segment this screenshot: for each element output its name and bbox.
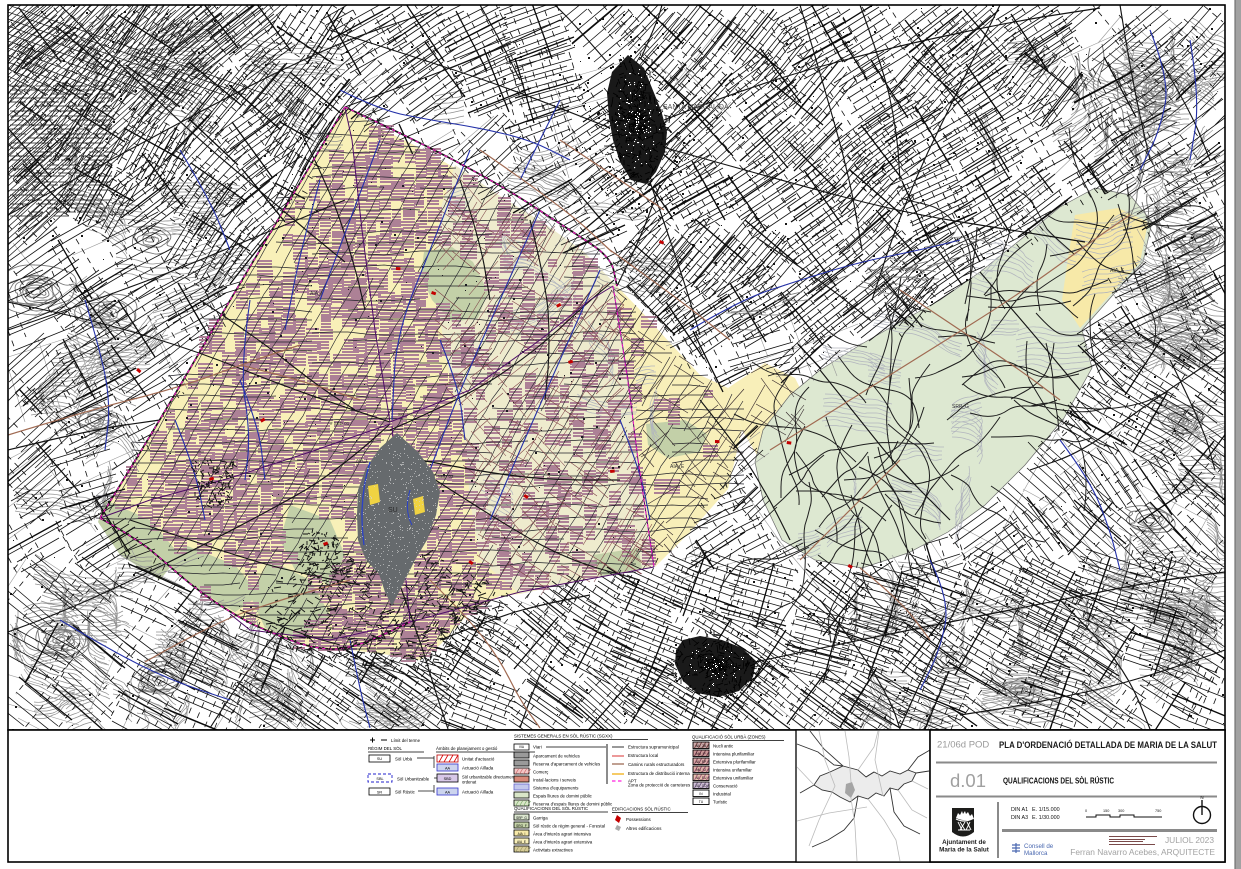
svg-text:Viari: Viari [533, 745, 542, 750]
svg-text:TU: TU [699, 800, 704, 804]
svg-text:AIA_E: AIA_E [670, 464, 685, 470]
svg-text:Zona de protecció de carretere: Zona de protecció de carreteres [628, 783, 691, 788]
svg-text:Estructura de distribució inte: Estructura de distribució interna [628, 771, 690, 776]
svg-text:N: N [1200, 795, 1203, 800]
svg-text:Possessions: Possessions [626, 817, 651, 822]
svg-text:NU_ZA: NU_ZA [696, 744, 707, 748]
svg-text:d.01: d.01 [950, 770, 986, 791]
svg-text:Conservació: Conservació [713, 783, 738, 788]
svg-text:JULIOL 2023: JULIOL 2023 [1165, 835, 1214, 845]
svg-text:EDIFICACIONS SÒL RÚSTIC: EDIFICACIONS SÒL RÚSTIC [612, 807, 671, 812]
svg-text:Àmbits de planejament o gestió: Àmbits de planejament o gestió [436, 746, 498, 751]
svg-text:ordenat: ordenat [462, 780, 477, 785]
svg-text:NU_IU: NU_IU [696, 768, 706, 772]
svg-text:SBD: SBD [444, 777, 452, 781]
svg-text:Actuació Aïllada: Actuació Aïllada [462, 766, 494, 771]
svg-text:0: 0 [1085, 809, 1087, 813]
svg-text:Extensiva plurifamiliar: Extensiva plurifamiliar [713, 759, 756, 764]
svg-text:LLUBI: LLUBI [108, 211, 125, 217]
svg-text:AIA_E: AIA_E [1110, 268, 1125, 274]
svg-text:Límit del terme: Límit del terme [391, 738, 421, 743]
svg-text:NU_CO: NU_CO [695, 784, 707, 788]
svg-text:Instal·lacions i serveis: Instal·lacions i serveis [533, 778, 577, 783]
svg-text:Aparcament de vehicles: Aparcament de vehicles [533, 754, 581, 759]
svg-text:Extensiva unifamiliar: Extensiva unifamiliar [713, 775, 754, 780]
svg-text:DIN A1: DIN A1 [1011, 807, 1028, 813]
svg-text:150: 150 [1103, 809, 1109, 813]
svg-text:Sòl Rústic: Sòl Rústic [395, 790, 416, 795]
svg-text:SISTEMES GENERALS EN SÒL RÚSTI: SISTEMES GENERALS EN SÒL RÚSTIC (SGXX) [514, 734, 613, 739]
svg-text:QUALIFICACIONS DEL SÒL RÚSTIC: QUALIFICACIONS DEL SÒL RÚSTIC [1003, 775, 1114, 786]
svg-text:Turístic: Turístic [713, 799, 728, 804]
svg-text:Estructura supramunicipal: Estructura supramunicipal [628, 745, 679, 750]
svg-text:DIN A3: DIN A3 [1011, 815, 1028, 821]
svg-text:Consell de: Consell de [1024, 843, 1054, 850]
svg-text:AIA_I: AIA_I [518, 832, 526, 836]
svg-text:SBL: SBL [376, 777, 383, 781]
svg-text:SBD 02: SBD 02 [438, 474, 454, 479]
svg-text:Estructura local: Estructura local [628, 753, 658, 758]
svg-text:Comerç: Comerç [533, 770, 549, 775]
svg-text:Altres edificacions: Altres edificacions [626, 826, 662, 831]
svg-text:SR: SR [377, 790, 383, 794]
svg-text:750: 750 [1155, 809, 1161, 813]
svg-text:QUALIFICACIÓ SÒL URBÀ (ZONES): QUALIFICACIÓ SÒL URBÀ (ZONES) [692, 735, 766, 740]
svg-text:SRP_G: SRP_G [952, 404, 969, 410]
svg-text:Actuació Aïllada: Actuació Aïllada [462, 790, 494, 795]
svg-text:Unitat d'actuació: Unitat d'actuació [462, 757, 495, 762]
svg-text:Espais lliures de domini públi: Espais lliures de domini públic [533, 794, 593, 799]
svg-text:Mallorca: Mallorca [1024, 850, 1048, 857]
svg-text:AA: AA [445, 766, 451, 770]
svg-text:21/06d POD: 21/06d POD [937, 740, 989, 751]
svg-text:SG_PS: SG_PS [398, 412, 413, 417]
svg-text:Sòl rústic de règim general -: Sòl rústic de règim general - Forestal [533, 824, 605, 829]
svg-text:Sòl Urbanitzable: Sòl Urbanitzable [397, 777, 430, 782]
svg-text:Industrial: Industrial [713, 791, 731, 796]
svg-text:SANTA MARGALIDA: SANTA MARGALIDA [663, 104, 729, 111]
svg-text:Nucli antic: Nucli antic [713, 743, 734, 748]
svg-text:AIA_E: AIA_E [517, 840, 526, 844]
svg-text:SU: SU [388, 507, 398, 514]
svg-text:RÈGIM DEL SÒL: RÈGIM DEL SÒL [368, 746, 403, 751]
svg-text:Intensiva unifamiliar: Intensiva unifamiliar [713, 767, 752, 772]
svg-text:Intensiva plurifamiliar: Intensiva plurifamiliar [713, 751, 755, 756]
svg-text:300: 300 [1118, 809, 1124, 813]
svg-text:QUALIFICACIONS DEL SÒL RÚSTIC: QUALIFICACIONS DEL SÒL RÚSTIC [514, 806, 588, 811]
svg-text:SRP_G: SRP_G [516, 816, 527, 820]
svg-text:Reserva d'aparcament de vehicl: Reserva d'aparcament de vehicles [533, 762, 601, 767]
svg-text:Àrea d'interès agrari extensiv: Àrea d'interès agrari extensiva [533, 840, 593, 845]
svg-text:SRG_F: SRG_F [516, 824, 527, 828]
svg-text:SU: SU [377, 757, 383, 761]
svg-text:Activitats extractives: Activitats extractives [533, 848, 574, 853]
svg-text:PLA D'ORDENACIÓ DETALLADA DE M: PLA D'ORDENACIÓ DETALLADA DE MARIA DE LA… [999, 739, 1217, 751]
svg-text:Maria de la Salut: Maria de la Salut [939, 847, 990, 854]
svg-text:AA: AA [445, 790, 451, 794]
svg-text:Garriga: Garriga [533, 816, 548, 821]
svg-text:Sòl Urbà: Sòl Urbà [395, 757, 413, 762]
svg-text:Camins rurals estructuradors: Camins rurals estructuradors [628, 762, 685, 767]
svg-text:E. 1/30.000: E. 1/30.000 [1032, 815, 1060, 821]
svg-text:AIA_I: AIA_I [310, 291, 322, 297]
svg-text:Ferran Navarro Acebes, ARQUITE: Ferran Navarro Acebes, ARQUITECTE [1070, 847, 1215, 857]
svg-text:AIA_I: AIA_I [356, 458, 367, 463]
svg-text:Sistema d'equipaments: Sistema d'equipaments [533, 786, 579, 791]
svg-text:E. 1/15.000: E. 1/15.000 [1032, 807, 1060, 813]
svg-text:NU_EU: NU_EU [696, 776, 708, 780]
svg-text:VIA: VIA [519, 745, 525, 749]
svg-text:# SBD 01: # SBD 01 [330, 421, 350, 426]
svg-text:Ajuntament de: Ajuntament de [942, 839, 986, 846]
svg-text:Àrea d'interès agrari intensiv: Àrea d'interès agrari intensiva [533, 832, 592, 837]
